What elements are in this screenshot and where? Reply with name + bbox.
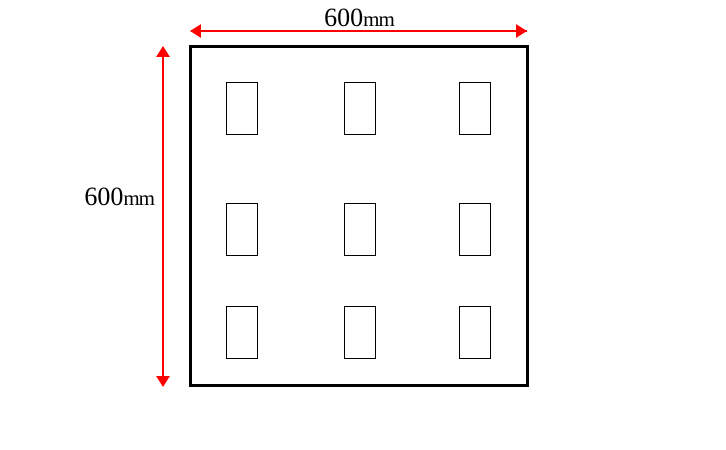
vertical-dimension-line <box>162 47 164 385</box>
width-dimension-label: 600mm <box>191 5 527 31</box>
panel-drawing-canvas: 600mm 600mm <box>0 0 726 450</box>
cutout-rect <box>226 82 258 135</box>
arrow-left-icon <box>190 24 201 38</box>
cutout-rect <box>344 203 376 256</box>
width-value: 600 <box>324 3 363 32</box>
height-value: 600 <box>84 182 123 211</box>
cutout-rect <box>344 306 376 359</box>
arrow-up-icon <box>156 46 170 57</box>
cutout-rect <box>344 82 376 135</box>
cutout-rect <box>226 203 258 256</box>
height-dimension-label: 600mm <box>0 184 156 210</box>
cutout-rect <box>459 306 491 359</box>
horizontal-dimension-line <box>191 30 527 32</box>
cutout-rect <box>226 306 258 359</box>
height-unit: mm <box>123 186 154 210</box>
width-unit: mm <box>363 7 394 31</box>
arrow-down-icon <box>156 376 170 387</box>
cutout-rect <box>459 82 491 135</box>
arrow-right-icon <box>516 24 527 38</box>
cutout-rect <box>459 203 491 256</box>
